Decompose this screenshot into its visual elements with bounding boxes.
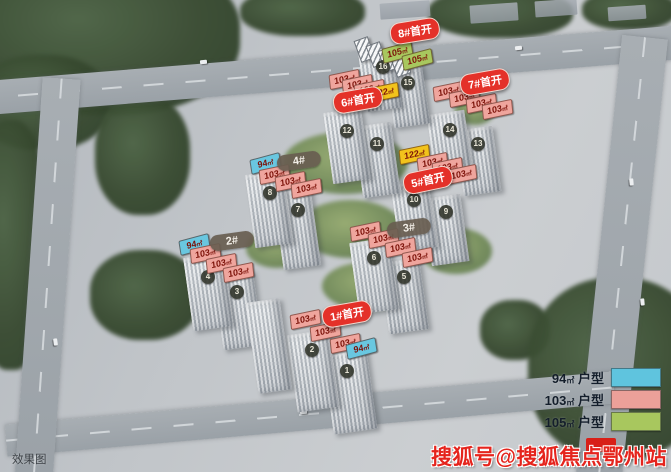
distant-building	[534, 0, 577, 17]
distant-building	[380, 0, 431, 19]
building-circle-5: 5	[397, 270, 411, 284]
legend-swatch-103	[611, 390, 661, 409]
legend-row-94: 94㎡ 户型	[501, 369, 661, 386]
building-circle-14: 14	[443, 123, 457, 137]
car	[515, 46, 522, 51]
aerial-rendering: 12345678910111213141516 105㎡105㎡103㎡103㎡…	[0, 0, 671, 472]
trees-cluster	[240, 0, 365, 36]
building-circle-3: 3	[230, 285, 244, 299]
legend: 94㎡ 户型103㎡ 户型105㎡ 户型	[501, 369, 661, 435]
car	[53, 338, 58, 345]
building-circle-9: 9	[439, 205, 453, 219]
legend-row-103: 103㎡ 户型	[501, 391, 661, 408]
trees-cluster	[95, 95, 190, 215]
building-circle-13: 13	[471, 137, 485, 151]
legend-row-105: 105㎡ 户型	[501, 413, 661, 430]
building-circle-1: 1	[340, 364, 354, 378]
car	[640, 298, 645, 305]
legend-label-103: 103㎡ 户型	[545, 390, 604, 409]
distant-building	[608, 5, 647, 22]
legend-label-105: 105㎡ 户型	[545, 412, 604, 431]
caption-xiaoguotu: 效果图	[12, 451, 47, 467]
legend-label-94: 94㎡ 户型	[552, 368, 604, 387]
banner-8-shoukai: 8#首开	[388, 16, 441, 46]
watermark-text: 搜狐号@搜狐焦点鄂州站	[431, 441, 667, 471]
car	[629, 178, 634, 185]
building-circle-2: 2	[305, 343, 319, 357]
legend-swatch-105	[611, 412, 661, 431]
building-tower	[246, 298, 292, 394]
building-circle-12: 12	[340, 124, 354, 138]
building-circle-7: 7	[291, 203, 305, 217]
building-circle-15: 15	[401, 76, 415, 90]
legend-swatch-94	[611, 368, 661, 387]
building-circle-11: 11	[370, 137, 384, 151]
banner-1-shoukai: 1#首开	[320, 299, 373, 329]
banner-5-shoukai: 5#首开	[401, 164, 455, 196]
car	[200, 60, 207, 65]
distant-building	[469, 2, 518, 23]
building-circle-6: 6	[367, 251, 381, 265]
building-circle-10: 10	[407, 193, 421, 207]
